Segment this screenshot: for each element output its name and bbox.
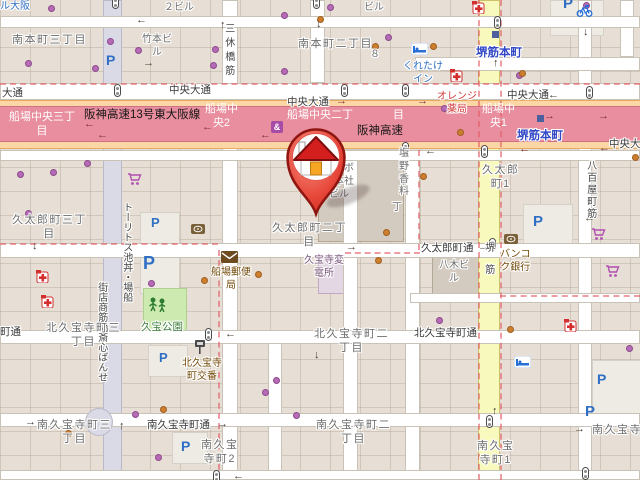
hotel-bed-icon — [411, 43, 428, 59]
bank-icon — [191, 222, 205, 238]
poi-dot-purple — [293, 412, 300, 419]
oneway-arrow-icon: ← — [233, 471, 244, 480]
poi-dot-orange — [255, 271, 262, 278]
road-vertical — [620, 0, 634, 57]
traffic-signal-icon — [586, 86, 593, 99]
traffic-signal-icon — [582, 467, 589, 480]
poi-dot-orange — [430, 43, 437, 50]
pharmacy-icon — [41, 295, 54, 312]
poi-dot-purple — [50, 169, 57, 176]
bank-icon — [504, 232, 518, 248]
poi-dot-purple — [135, 47, 142, 54]
poi-dot-purple — [132, 411, 139, 418]
oneway-arrow-icon: → — [478, 242, 489, 253]
parking-icon: P — [597, 372, 606, 386]
poi-dot-purple — [92, 65, 99, 72]
road-vertical — [103, 0, 122, 480]
poi-dot-purple — [441, 105, 448, 112]
road-horizontal — [410, 293, 640, 303]
oneway-arrow-icon: → — [217, 419, 228, 430]
oneway-arrow-icon: ↓ — [32, 241, 38, 252]
road-horizontal — [0, 83, 640, 100]
poi-dot-purple — [148, 280, 155, 287]
parking-lot — [148, 345, 188, 377]
poi-dot-orange — [457, 129, 464, 136]
plaza-circle — [85, 408, 113, 436]
poi-dot-orange — [519, 70, 526, 77]
traffic-signal-icon — [205, 328, 212, 341]
poi-dot-purple — [327, 4, 334, 11]
poi-dot-purple — [17, 171, 24, 178]
poi-dot-orange — [201, 277, 208, 284]
bicycle-parking-icon — [576, 5, 593, 21]
oneway-arrow-icon: ← — [260, 130, 271, 141]
traffic-signal-icon — [114, 84, 121, 97]
parking-icon: P — [159, 351, 168, 364]
oneway-arrow-icon: → — [417, 96, 428, 107]
oneway-arrow-icon: ↑ — [119, 421, 125, 432]
poi-dot-orange — [65, 430, 72, 437]
oneway-arrow-icon: → — [143, 58, 154, 69]
poi-dot-purple — [212, 46, 219, 53]
oneway-arrow-icon: ↓ — [583, 27, 589, 38]
road-horizontal — [0, 243, 640, 258]
parking-icon: P — [585, 404, 595, 419]
map-canvas[interactable]: ル大阪２ビルビル南本町三丁目南本町二丁目竹本ビ ル８くれたけ イン堺筋本町堺筋本… — [0, 0, 640, 480]
supermarket-cart-icon — [591, 228, 606, 245]
traffic-signal-icon — [481, 145, 488, 158]
poi-dot-orange — [375, 257, 382, 264]
oneway-arrow-icon: → — [598, 111, 609, 122]
subway-entrance-icon — [537, 115, 544, 122]
parking-icon: P — [106, 53, 115, 67]
oneway-arrow-icon: ↓ — [314, 350, 320, 361]
poi-dot-purple — [84, 160, 91, 167]
traffic-signal-icon — [494, 16, 501, 29]
poi-dot-purple — [25, 210, 32, 217]
poi-dot-purple — [210, 62, 217, 69]
oneway-arrow-icon: ← — [425, 146, 436, 157]
subway-entrance-icon — [492, 31, 499, 38]
pharmacy-icon — [564, 319, 577, 336]
oneway-arrow-icon: → — [336, 96, 347, 107]
oneway-arrow-icon: ↑ — [220, 20, 226, 31]
parking-icon: P — [563, 0, 573, 11]
oneway-arrow-icon: ← — [584, 213, 595, 224]
parking-icon: P — [151, 216, 160, 229]
oneway-arrow-icon: ← — [599, 143, 610, 154]
poi-dot-purple — [107, 38, 114, 45]
parking-icon: P — [143, 254, 155, 272]
traffic-signal-icon — [313, 0, 320, 9]
poi-dot-purple — [626, 345, 633, 352]
parking-lot — [523, 204, 573, 246]
road-horizontal — [415, 57, 640, 71]
parking-icon: P — [533, 214, 543, 229]
oneway-arrow-icon: → — [574, 424, 585, 435]
poi-dot-purple — [48, 5, 55, 12]
traffic-signal-icon — [489, 238, 496, 251]
oneway-arrow-icon: → — [25, 417, 36, 428]
post-office-icon — [221, 251, 238, 267]
traffic-signal-icon — [112, 0, 119, 9]
poi-dot-purple — [385, 34, 392, 41]
poi-dot-purple — [25, 60, 32, 67]
parking-icon: P — [181, 439, 190, 453]
home-location-pin[interactable] — [284, 126, 348, 220]
pharmacy-icon — [472, 1, 485, 18]
traffic-signal-icon — [402, 142, 409, 155]
oneway-arrow-icon: ← — [136, 15, 147, 26]
oneway-arrow-icon: ← — [468, 328, 479, 339]
oneway-arrow-icon: ← — [202, 122, 213, 133]
supermarket-cart-icon — [127, 173, 142, 190]
poi-dot-orange — [420, 173, 427, 180]
oneway-arrow-icon: → — [544, 111, 555, 122]
oneway-arrow-icon: → — [346, 242, 357, 253]
poi-dot-purple — [281, 68, 288, 75]
oneway-arrow-icon: ← — [84, 119, 95, 130]
poi-dot-purple — [262, 389, 269, 396]
poi-dot-purple — [273, 377, 280, 384]
playground-icon — [148, 297, 167, 316]
road-vertical — [222, 0, 238, 480]
pharmacy-icon — [36, 270, 49, 287]
oneway-arrow-icon: ← — [97, 130, 108, 141]
poi-dot-orange — [507, 326, 514, 333]
oneway-arrow-icon: ↑ — [492, 406, 498, 417]
oneway-arrow-icon: ← — [225, 329, 236, 340]
poi-dot-purple — [436, 317, 443, 324]
poi-dot-purple — [281, 12, 288, 19]
road-vertical — [405, 150, 420, 480]
poi-dot-orange — [160, 406, 167, 413]
oneway-arrow-icon: ← — [548, 90, 559, 101]
shop-icon: & — [271, 121, 283, 133]
supermarket-cart-icon — [605, 265, 620, 282]
hotel-bed-icon — [514, 356, 531, 372]
oneway-arrow-icon: ↓ — [316, 19, 322, 30]
pharmacy-icon — [450, 69, 463, 86]
road-horizontal — [0, 330, 640, 344]
poi-dot-orange — [372, 43, 379, 50]
traffic-signal-icon — [213, 470, 220, 480]
traffic-signal-icon — [402, 84, 409, 97]
poi-dot-orange — [383, 229, 390, 236]
police-icon — [194, 339, 206, 358]
poi-dot-purple — [155, 454, 162, 461]
road-horizontal — [0, 470, 640, 480]
road-vertical — [268, 337, 282, 480]
poi-dot-orange — [632, 154, 639, 161]
oneway-arrow-icon: ↑ — [493, 58, 499, 69]
oneway-arrow-icon: ← — [519, 144, 530, 155]
road-vertical — [310, 0, 325, 83]
